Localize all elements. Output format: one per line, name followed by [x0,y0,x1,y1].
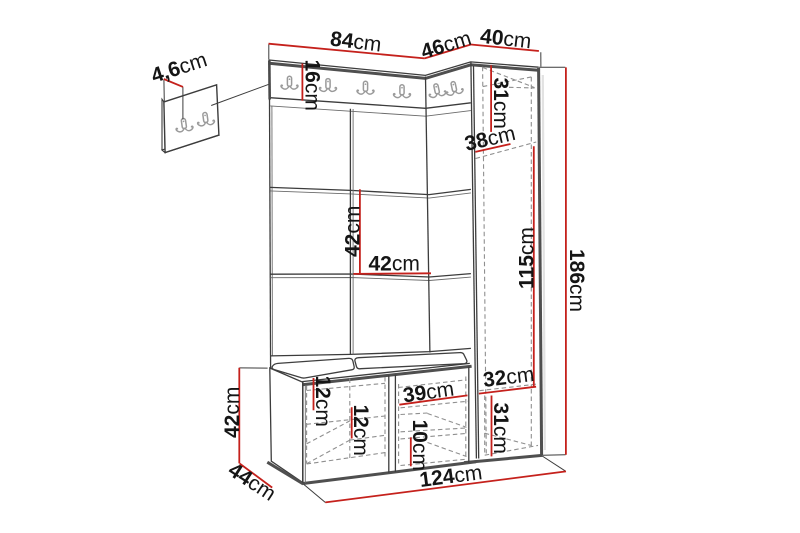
svg-text:12cm: 12cm [311,376,334,427]
svg-text:16cm: 16cm [301,60,324,111]
svg-text:186cm: 186cm [565,249,588,312]
svg-text:42cm: 42cm [369,253,420,276]
svg-text:31cm: 31cm [489,78,512,129]
svg-text:31cm: 31cm [489,403,512,454]
svg-text:115cm: 115cm [516,227,539,289]
svg-text:12cm: 12cm [349,405,372,456]
svg-text:42cm: 42cm [221,387,244,438]
svg-text:42cm: 42cm [341,206,364,257]
svg-text:10cm: 10cm [408,420,431,471]
